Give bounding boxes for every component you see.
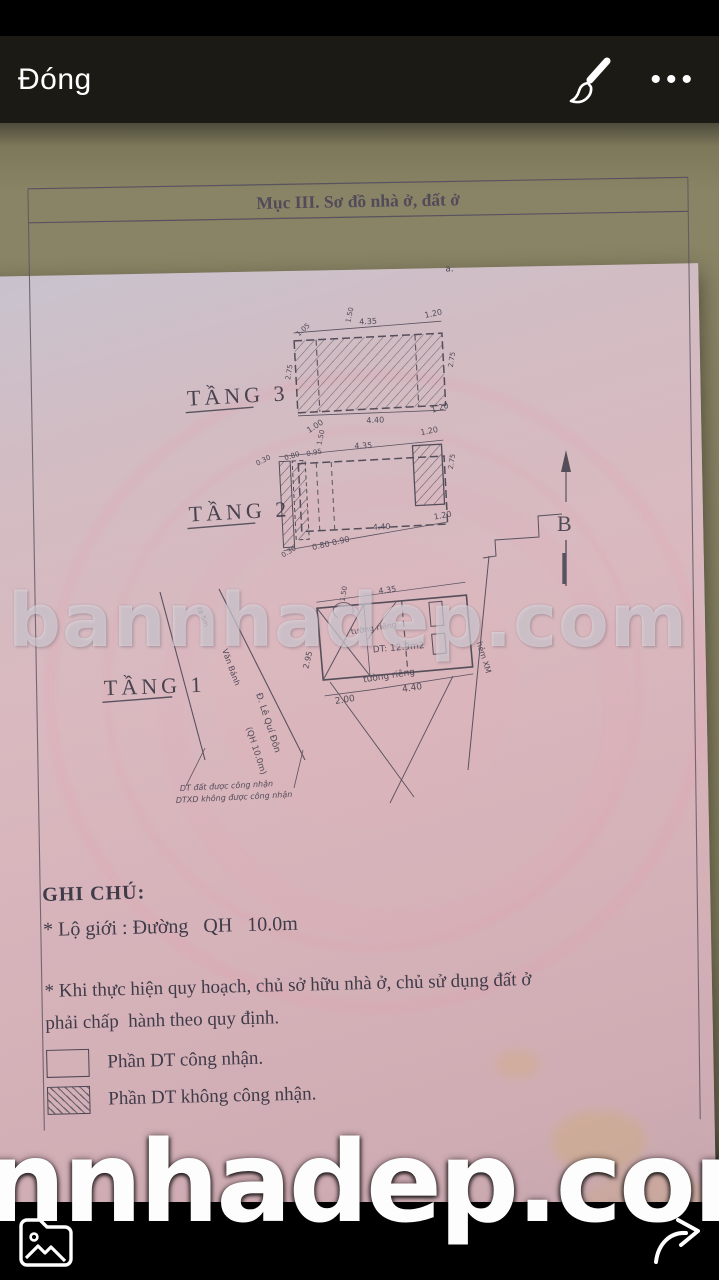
watermark-bottom: nnhadep.com: [0, 1118, 719, 1248]
more-button[interactable]: •••: [650, 36, 697, 123]
photo-folder-icon: [21, 1220, 71, 1265]
status-bar: [0, 0, 719, 36]
notes-section: GHI CHÚ: * Lộ giới : Đường QH 10.0m * Kh…: [42, 871, 567, 1114]
legend-row-recognized: Phần DT công nhận.: [46, 1037, 567, 1078]
legend-label: Phần DT công nhận.: [107, 1047, 263, 1073]
share-arrow-icon: [656, 1220, 698, 1262]
photo-viewer-screen: Mục III. Sơ đồ nhà ở, đất ở a. 1.05 1.50…: [0, 0, 719, 1280]
legend-label: Phần DT không công nhận.: [108, 1083, 317, 1110]
gallery-button[interactable]: [16, 1212, 76, 1270]
watermark-center: bannhadep.com: [8, 578, 719, 664]
brush-icon: [571, 61, 607, 102]
edit-button[interactable]: [566, 54, 612, 106]
nav-bar: Đóng •••: [0, 36, 719, 123]
close-button[interactable]: Đóng: [18, 63, 92, 97]
share-button[interactable]: [648, 1216, 706, 1268]
planning-note: * Khi thực hiện quy hoạch, chủ sở hữu nh…: [44, 964, 537, 1041]
legend-swatch-hatched: [47, 1085, 91, 1114]
road-boundary-note: * Lộ giới : Đường QH 10.0m: [43, 906, 563, 942]
legend-swatch-plain: [46, 1048, 90, 1077]
